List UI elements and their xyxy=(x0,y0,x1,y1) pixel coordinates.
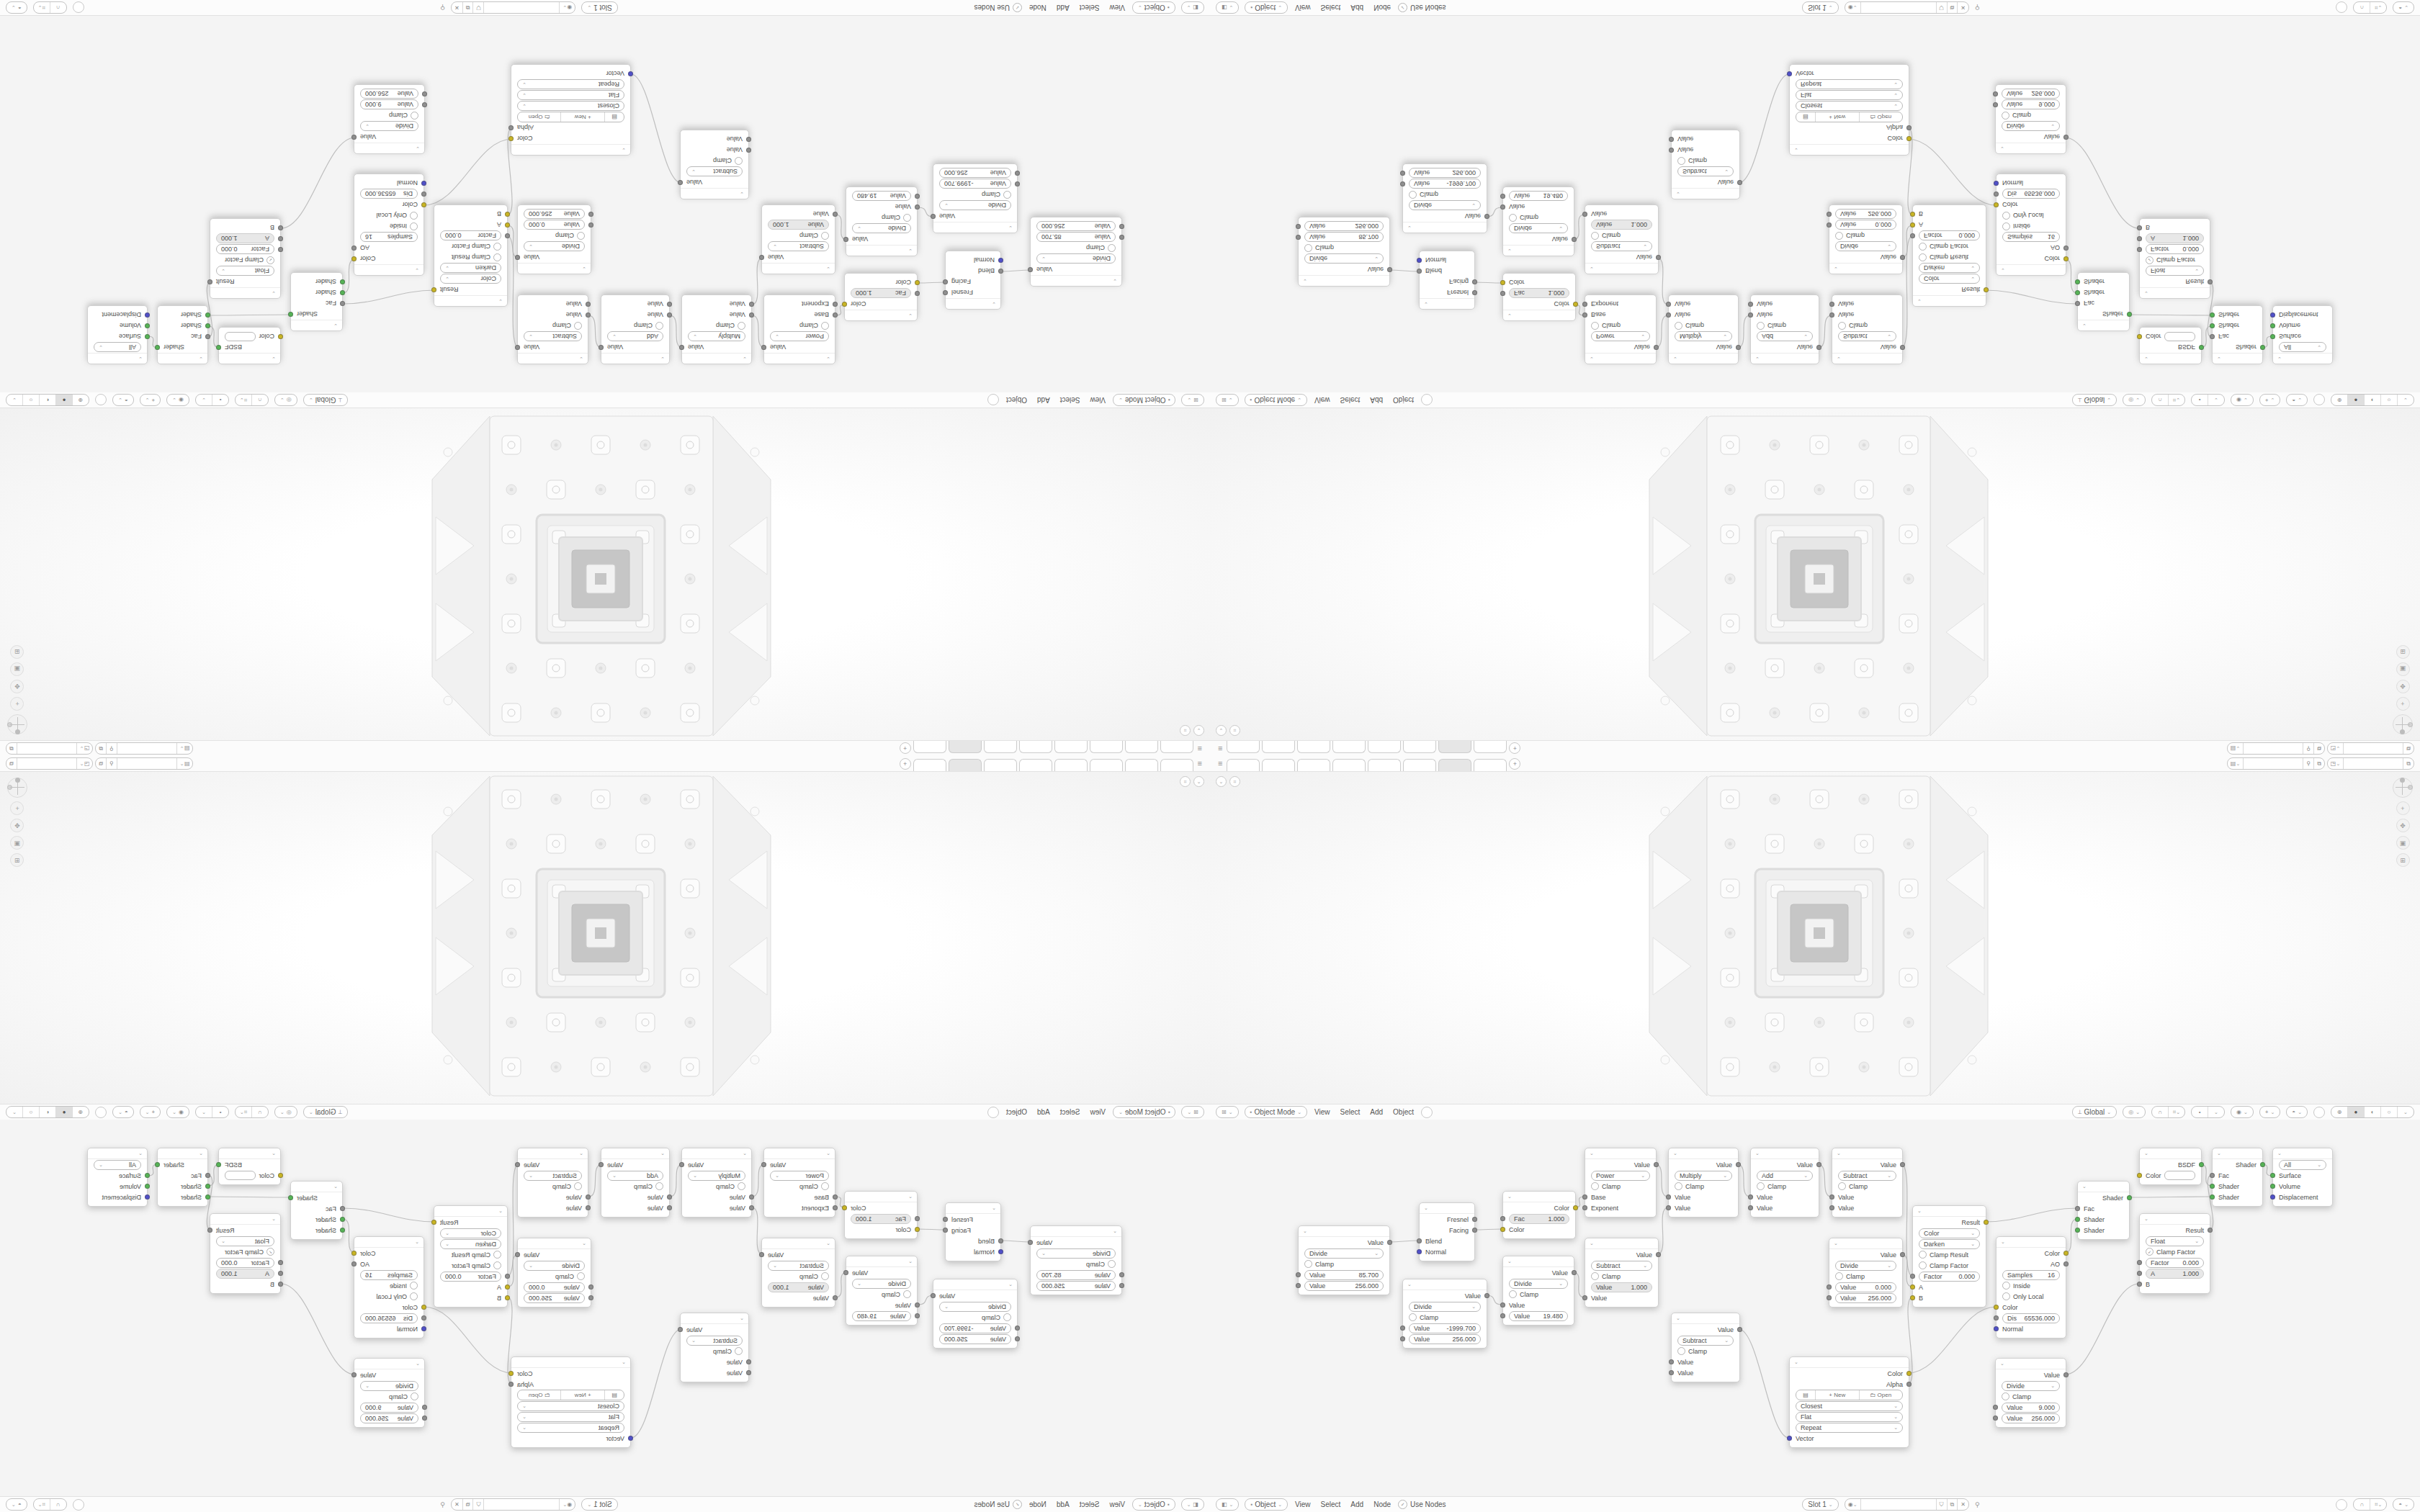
node-header[interactable]: ⌄ xyxy=(1996,1359,2066,1369)
node-math-divide-b[interactable]: ⌄ValueDivide⌄ClampValue-1999.700Value256… xyxy=(933,163,1018,233)
dropdown-color[interactable]: Color⌄ xyxy=(440,274,501,284)
socket-gray[interactable] xyxy=(515,1252,520,1257)
checkbox[interactable]: ✓ xyxy=(266,256,274,264)
shading-solid-icon[interactable]: ● xyxy=(56,395,73,405)
dropdown-divide[interactable]: Divide⌄ xyxy=(1409,1302,1481,1312)
node-math-subtract-a[interactable]: ⌄ValueSubtract⌄ClampValueValue xyxy=(1832,1148,1903,1218)
node-math-subtract-a[interactable]: ⌄ValueSubtract⌄ClampValueValue xyxy=(517,1148,588,1218)
material-name-field[interactable] xyxy=(484,1499,560,1510)
socket-green[interactable] xyxy=(2075,290,2080,295)
socket-gray[interactable] xyxy=(505,1274,510,1279)
checkbox[interactable] xyxy=(1838,322,1846,330)
socket-gray[interactable] xyxy=(588,1295,593,1300)
value-field-value[interactable]: Value19.480 xyxy=(852,192,911,202)
dropdown-divide[interactable]: Divide⌄ xyxy=(852,1279,911,1289)
node-layer-weight[interactable]: ⌄FresnelFacingBlendNormal xyxy=(1419,1202,1475,1261)
dropdown-subtract[interactable]: Subtract⌄ xyxy=(1838,332,1896,342)
socket-gray[interactable] xyxy=(2063,246,2069,251)
view-layer-selector[interactable]: ◳⌄ ⧉ xyxy=(6,742,93,755)
socket-green[interactable] xyxy=(205,1184,210,1189)
dropdown-flat[interactable]: Flat⌄ xyxy=(517,1412,624,1422)
socket-gray[interactable] xyxy=(1472,1228,1477,1233)
socket-green[interactable] xyxy=(2270,1173,2275,1178)
workspace-tab[interactable] xyxy=(1474,741,1507,753)
node-math-divide-c[interactable]: ⌄ValueDivide⌄ClampValueValue19.480 xyxy=(846,186,918,256)
menu-view[interactable]: View xyxy=(1089,396,1108,404)
socket-gray[interactable] xyxy=(2137,225,2142,230)
visibility-dropdown[interactable]: ◉⌄ xyxy=(166,394,189,406)
socket-blue[interactable] xyxy=(998,1249,1003,1254)
socket-gray[interactable] xyxy=(761,1162,766,1167)
options-icon[interactable]: ⌄ xyxy=(1216,725,1227,736)
workspace-tab[interactable] xyxy=(1438,759,1471,771)
camera-gizmo-icon[interactable]: ▣ xyxy=(11,662,24,676)
node-ambient-occlusion[interactable]: ⌄ColorAOSamples16InsideOnly LocalColorDi… xyxy=(1996,1236,2066,1338)
dropdown-darken[interactable]: Darken⌄ xyxy=(440,1239,501,1249)
socket-blue[interactable] xyxy=(628,71,633,76)
value-field-factor[interactable]: Factor0.000 xyxy=(216,245,274,255)
socket-gray[interactable] xyxy=(278,1282,283,1287)
editor-type-button[interactable]: ◧⌄ xyxy=(1216,1498,1239,1511)
workspace-tab[interactable] xyxy=(984,759,1017,771)
dropdown-flat[interactable]: Flat⌄ xyxy=(1796,91,1903,101)
socket-gray[interactable] xyxy=(746,148,751,153)
node-math-add[interactable]: ⌄ValueAdd⌄ClampValueValue xyxy=(601,294,670,364)
dropdown-divide[interactable]: Divide⌄ xyxy=(1409,201,1481,211)
dropdown-multiply[interactable]: Multiply⌄ xyxy=(1675,332,1732,342)
orientation-selector[interactable]: ⟂Global⌄ xyxy=(2072,394,2117,406)
node-math-divide-b[interactable]: ⌄ValueDivide⌄ClampValue-1999.700Value256… xyxy=(1402,1279,1487,1349)
node-header[interactable]: ⌄ xyxy=(1751,353,1819,364)
socket-blue[interactable] xyxy=(1787,1436,1792,1441)
value-field-value[interactable]: Value1.000 xyxy=(768,1282,829,1292)
node-header[interactable]: ⌄ xyxy=(1669,353,1738,364)
socket-yellow[interactable] xyxy=(505,1284,510,1290)
use-nodes-toggle[interactable]: ✓ Use Nodes xyxy=(974,1500,1021,1509)
copy-icon[interactable]: ⧉ xyxy=(96,758,107,769)
workspace-tab[interactable] xyxy=(1054,759,1088,771)
close-icon[interactable]: ✕ xyxy=(1957,2,1968,13)
dropdown-closest[interactable]: Closest⌄ xyxy=(517,102,624,112)
shading-dropdown-icon[interactable]: ⌄ xyxy=(6,1107,23,1117)
checkbox[interactable] xyxy=(1003,1313,1011,1321)
value-field-factor[interactable]: Factor0.000 xyxy=(2146,245,2204,255)
node-ambient-occlusion[interactable]: ⌄ColorAOSamples16InsideOnly LocalColorDi… xyxy=(354,174,424,276)
socket-gray[interactable] xyxy=(1829,312,1834,318)
node-header[interactable]: ⌄ xyxy=(1669,1148,1738,1159)
socket-gray[interactable] xyxy=(1827,222,1832,228)
node-math-divide-a[interactable]: ⌄ValueDivide⌄ClampValue85.700Value256.00… xyxy=(1298,217,1390,287)
new-image-button[interactable]: + New xyxy=(1815,1390,1859,1400)
node-diffuse-bsdf[interactable]: ⌄BSDFColor xyxy=(218,1148,281,1185)
dropdown-darken[interactable]: Darken⌄ xyxy=(1919,1239,1980,1249)
checkbox[interactable] xyxy=(655,1182,663,1190)
socket-gray[interactable] xyxy=(915,194,920,199)
shading-material-icon[interactable]: ◐ xyxy=(40,1107,56,1117)
socket-gray[interactable] xyxy=(1900,1162,1905,1167)
socket-green[interactable] xyxy=(2127,1195,2132,1200)
node-header[interactable]: ⌄ xyxy=(1585,1238,1658,1249)
checkbox[interactable] xyxy=(821,1182,829,1190)
material-selector[interactable]: ◉⌄ ⛉ ⧉ ✕ xyxy=(1845,1498,1969,1511)
socket-gray[interactable] xyxy=(1472,1217,1477,1222)
value-field-value[interactable]: Value-1999.700 xyxy=(939,179,1011,189)
mode-selector[interactable]: ▪Object Mode⌄ xyxy=(1245,394,1307,406)
node-header[interactable]: ⌄ xyxy=(1829,1238,1902,1249)
zoom-gizmo-icon[interactable]: + xyxy=(11,697,24,711)
hamburger-icon[interactable]: ≡ xyxy=(1196,744,1204,752)
value-field-value[interactable]: Value256.000 xyxy=(2002,1413,2060,1423)
node-material-output[interactable]: ⌄All⌄SurfaceVolumeDisplacement xyxy=(87,1148,148,1207)
socket-green[interactable] xyxy=(145,323,150,328)
dropdown-all[interactable]: All⌄ xyxy=(2279,1160,2326,1170)
socket-yellow[interactable] xyxy=(1573,1205,1578,1210)
checkbox[interactable] xyxy=(410,212,418,220)
node-header[interactable]: ⌄ xyxy=(1672,1313,1739,1324)
visibility-dropdown[interactable]: ◉⌄ xyxy=(166,1106,189,1118)
value-field-value[interactable]: Value9.000 xyxy=(360,1403,418,1413)
node-header[interactable]: ⌄ xyxy=(1503,310,1575,320)
socket-gray[interactable] xyxy=(749,302,754,307)
menu-select[interactable]: Select xyxy=(1059,1108,1082,1116)
socket-gray[interactable] xyxy=(1387,1240,1392,1245)
checkbox[interactable] xyxy=(1919,243,1927,251)
socket-gray[interactable] xyxy=(1015,181,1020,186)
workspace-tab[interactable] xyxy=(1332,759,1366,771)
socket-green[interactable] xyxy=(2199,1162,2204,1167)
editor-type-button[interactable]: ◧⌄ xyxy=(1181,1,1204,14)
socket-yellow[interactable] xyxy=(1984,287,1989,292)
node-math-subtract-b[interactable]: ⌄ValueSubtract⌄ClampValue1.000Value xyxy=(761,204,835,274)
socket-yellow[interactable] xyxy=(842,1205,847,1210)
proportional-editing[interactable]: • ⌄ xyxy=(195,1106,229,1118)
falloff-icon[interactable]: ⌄ xyxy=(2208,1107,2224,1117)
workspace-tab[interactable] xyxy=(1262,759,1295,771)
socket-gray[interactable] xyxy=(1827,1284,1832,1290)
menu-select[interactable]: Select xyxy=(1059,396,1082,404)
node-header[interactable]: ⌄ xyxy=(1996,143,2066,153)
material-name-field[interactable] xyxy=(1860,1499,1936,1510)
socket-gray[interactable] xyxy=(1484,1293,1489,1298)
socket-gray[interactable] xyxy=(1296,1272,1301,1277)
node-mix-shader-b[interactable]: ⌄ShaderFacShaderShader xyxy=(2212,1148,2263,1207)
node-math-divide-e[interactable]: ⌄ValueDivide⌄ClampValue9.000Value256.000 xyxy=(1995,84,2066,154)
node-header[interactable]: ⌄ xyxy=(1503,1192,1575,1202)
checkbox[interactable] xyxy=(410,222,418,230)
shading-mode-switch[interactable]: ⊕ ● ◐ ○ ⌄ xyxy=(2331,394,2414,406)
image-selector[interactable]: ▤+ New🗀 Open xyxy=(1796,112,1903,122)
socket-blue[interactable] xyxy=(1994,181,1999,186)
socket-gray[interactable] xyxy=(351,135,357,140)
shading-mode-switch[interactable]: ⊕ ● ◐ ○ ⌄ xyxy=(6,394,89,406)
move-gizmo-icon[interactable]: ✥ xyxy=(2396,680,2410,693)
socket-yellow[interactable] xyxy=(1994,202,1999,207)
value-field-fac[interactable]: Fac1.000 xyxy=(1509,1214,1569,1224)
menu-select[interactable]: Select xyxy=(1078,1500,1101,1508)
scene-selector[interactable]: ▤⌄ ⚲ ⧉ xyxy=(95,742,193,755)
node-math-divide-d[interactable]: ⌄ValueDivide⌄ClampValue0.000Value256.000 xyxy=(1829,1238,1903,1308)
shader-node-editor[interactable]: ⌄ValueDivide⌄ClampValue85.700Value256.00… xyxy=(0,1120,1210,1496)
menu-add[interactable]: Add xyxy=(1055,4,1071,12)
snap-toggle[interactable]: ◎⌄ xyxy=(2123,394,2146,406)
workspace-tab[interactable] xyxy=(913,741,946,753)
dropdown-add[interactable]: Add⌄ xyxy=(607,1171,663,1181)
socket-gray[interactable] xyxy=(1910,1274,1915,1279)
socket-blue[interactable] xyxy=(421,181,426,186)
socket-gray[interactable] xyxy=(833,1194,838,1200)
image-selector[interactable]: ▤+ New🗀 Open xyxy=(517,112,624,122)
socket-yellow[interactable] xyxy=(505,1295,510,1300)
socket-gray[interactable] xyxy=(1900,255,1905,260)
checkbox[interactable] xyxy=(410,1282,418,1290)
copy-icon[interactable]: ⧉ xyxy=(2313,758,2324,769)
socket-blue[interactable] xyxy=(998,258,1003,263)
pin-icon[interactable]: ⚲ xyxy=(2303,758,2313,769)
hamburger-icon[interactable]: ≡ xyxy=(1216,744,1224,752)
node-math-add[interactable]: ⌄ValueAdd⌄ClampValueValue xyxy=(1750,1148,1819,1218)
view-layer-name-field[interactable] xyxy=(2343,743,2403,754)
node-mix-color[interactable]: ⌄ResultColor⌄Darken⌄Clamp ResultClamp Fa… xyxy=(1912,1205,1986,1308)
socket-gray[interactable] xyxy=(1666,1194,1671,1200)
gizmo-dropdown[interactable]: ⌖⌄ xyxy=(2259,1106,2280,1118)
node-header[interactable]: ⌄ xyxy=(2273,1148,2332,1159)
node-header[interactable]: ⌄ xyxy=(2078,320,2129,330)
dropdown-subtract[interactable]: Subtract⌄ xyxy=(1677,167,1734,177)
node-header[interactable]: ⌄ xyxy=(354,143,424,153)
socket-gray[interactable] xyxy=(746,1359,751,1364)
node-header[interactable]: ⌄ xyxy=(1031,1226,1121,1237)
menu-object[interactable]: Object xyxy=(1391,396,1415,404)
checkbox[interactable] xyxy=(1591,1182,1599,1190)
overlays-dropdown[interactable]: ◓⌄ xyxy=(112,394,134,406)
value-field-value[interactable]: Value-1999.700 xyxy=(1409,179,1481,189)
snap-toggle[interactable]: ◎⌄ xyxy=(274,394,297,406)
dropdown-divide[interactable]: Divide⌄ xyxy=(524,242,585,252)
socket-green[interactable] xyxy=(2270,334,2275,339)
node-header[interactable]: ⌄ xyxy=(762,263,835,274)
socket-gray[interactable] xyxy=(508,1382,514,1387)
value-field-value[interactable]: Value256.000 xyxy=(939,1334,1011,1344)
socket-yellow[interactable] xyxy=(421,202,426,207)
node-header[interactable]: ⌄ xyxy=(846,1256,917,1267)
socket-green[interactable] xyxy=(288,1195,293,1200)
dropdown-float[interactable]: Float⌄ xyxy=(2146,1236,2204,1246)
shading-rendered-icon[interactable]: ○ xyxy=(23,395,40,405)
node-header[interactable]: ⌄ xyxy=(354,1237,423,1248)
socket-gray[interactable] xyxy=(931,1293,936,1298)
socket-gray[interactable] xyxy=(1994,192,1999,197)
value-field-value[interactable]: Value256.000 xyxy=(1304,1281,1384,1291)
checkbox[interactable] xyxy=(410,1292,418,1300)
node-header[interactable]: ⌄ xyxy=(946,298,1000,309)
dropdown-divide[interactable]: Divide⌄ xyxy=(524,1261,585,1271)
socket-gray[interactable] xyxy=(679,345,684,350)
node-header[interactable]: ⌄ xyxy=(1031,275,1121,286)
viewport-3d[interactable]: ⌄ ⌗ + ✥ ▣ ⊞ xyxy=(0,772,1210,1104)
magnet-icon[interactable]: ∩ xyxy=(2354,1499,2370,1510)
axis-gizmo[interactable] xyxy=(7,778,27,798)
value-field-fac[interactable]: Fac1.000 xyxy=(851,289,911,299)
grid-icon[interactable]: ⌗ xyxy=(1180,725,1191,736)
dropdown-color[interactable]: Color⌄ xyxy=(1919,1228,1980,1238)
shading-wireframe-icon[interactable]: ⊕ xyxy=(2331,1107,2347,1117)
checkbox[interactable] xyxy=(1304,244,1312,252)
checkbox[interactable] xyxy=(1677,1347,1685,1355)
socket-green[interactable] xyxy=(340,290,345,295)
socket-blue[interactable] xyxy=(2270,1194,2275,1200)
socket-green[interactable] xyxy=(340,1217,345,1222)
checkbox[interactable] xyxy=(1835,1272,1843,1280)
workspace-tab[interactable] xyxy=(1019,741,1052,753)
ortho-gizmo-icon[interactable]: ⊞ xyxy=(11,853,24,867)
value-field-value[interactable]: Value0.000 xyxy=(524,1282,585,1292)
checkbox[interactable]: ✓ xyxy=(2146,256,2154,264)
value-field-a[interactable]: A1.000 xyxy=(2146,1269,2204,1279)
checkbox[interactable] xyxy=(1835,232,1843,240)
socket-yellow[interactable] xyxy=(1984,1220,1989,1225)
magnet-icon[interactable]: ∩ xyxy=(50,2,66,13)
socket-gray[interactable] xyxy=(1582,1295,1587,1300)
socket-gray[interactable] xyxy=(1816,1162,1821,1167)
node-mix-shader-b[interactable]: ⌄ShaderFacShaderShader xyxy=(157,305,208,364)
socket-gray[interactable] xyxy=(1015,1326,1020,1331)
node-mix-shader-b[interactable]: ⌄ShaderFacShaderShader xyxy=(157,1148,208,1207)
snap-settings[interactable]: ∩ ⌗⌄ xyxy=(33,1498,67,1511)
shader-node-editor[interactable]: ⌄ValueDivide⌄ClampValue85.700Value256.00… xyxy=(1210,1120,2420,1496)
zoom-gizmo-icon[interactable]: + xyxy=(2396,697,2410,711)
open-image-button[interactable]: 🗀 Open xyxy=(518,112,562,122)
node-header[interactable]: ⌄ xyxy=(1829,263,1902,274)
transform-pivot-button[interactable] xyxy=(987,1107,999,1118)
socket-gray[interactable] xyxy=(759,255,764,260)
socket-yellow[interactable] xyxy=(278,1173,283,1178)
dropdown-all[interactable]: All⌄ xyxy=(94,1160,141,1170)
menu-select[interactable]: Select xyxy=(1339,396,1362,404)
socket-gray[interactable] xyxy=(586,302,591,307)
snap-target-icon[interactable]: ⌗⌄ xyxy=(236,395,252,405)
menu-view[interactable]: View xyxy=(1108,1500,1126,1508)
editor-type-button[interactable]: ⊞⌄ xyxy=(1216,1106,1239,1118)
socket-gray[interactable] xyxy=(508,125,514,130)
editor-type-button[interactable]: ⊞⌄ xyxy=(1216,394,1239,406)
workspace-tab[interactable] xyxy=(949,741,982,753)
value-field-value[interactable]: Value19.480 xyxy=(852,1311,911,1321)
socket-gray[interactable] xyxy=(278,1260,283,1265)
ortho-gizmo-icon[interactable]: ⊞ xyxy=(11,645,24,659)
visibility-dropdown[interactable]: ◉⌄ xyxy=(2231,1106,2254,1118)
snap-settings[interactable]: ∩ ⌗⌄ xyxy=(235,394,269,406)
checkbox[interactable] xyxy=(655,322,663,330)
snap-settings[interactable]: ∩ ⌗⌄ xyxy=(235,1106,269,1118)
mode-selector[interactable]: ▪Object Mode⌄ xyxy=(1113,1106,1175,1118)
socket-gray[interactable] xyxy=(1572,237,1577,242)
material-selector[interactable]: ◉⌄ ⛉ ⧉ ✕ xyxy=(451,1,575,14)
node-header[interactable]: ⌄ xyxy=(434,1206,507,1217)
open-image-button[interactable]: 🗀 Open xyxy=(518,1390,562,1400)
proportional-icon[interactable]: • xyxy=(212,395,228,405)
viewport-3d[interactable]: ⌄ ⌗ + ✥ ▣ ⊞ xyxy=(0,408,1210,740)
pin-icon[interactable]: ⚲ xyxy=(107,758,117,769)
socket-yellow[interactable] xyxy=(505,222,510,228)
node-header[interactable]: ⌄ xyxy=(2273,353,2332,364)
socket-gray[interactable] xyxy=(2075,301,2080,306)
workspace-tab[interactable] xyxy=(1403,759,1436,771)
workspace-tab[interactable] xyxy=(1160,741,1193,753)
snap-toggle[interactable] xyxy=(73,1499,84,1511)
checkbox[interactable] xyxy=(1108,1260,1116,1268)
dropdown-multiply[interactable]: Multiply⌄ xyxy=(688,332,745,342)
add-workspace-button[interactable]: + xyxy=(900,743,911,755)
node-image-texture[interactable]: ⌄ColorAlpha▤+ New🗀 OpenClosest⌄Flat⌄Repe… xyxy=(511,1356,631,1448)
socket-gray[interactable] xyxy=(599,345,604,350)
value-field-value[interactable]: Value256.000 xyxy=(360,1413,418,1423)
node-header[interactable]: ⌄ xyxy=(518,1238,591,1249)
node-header[interactable]: ⌄ xyxy=(354,1359,424,1369)
node-mix-float[interactable]: ⌄ResultFloat⌄✓Clamp FactorFactor0.000A1.… xyxy=(2139,1213,2210,1294)
socket-gray[interactable] xyxy=(746,1370,751,1375)
dropdown-divide[interactable]: Divide⌄ xyxy=(1036,1248,1116,1259)
image-selector[interactable]: ▤+ New🗀 Open xyxy=(517,1390,624,1400)
node-header[interactable]: ⌄ xyxy=(845,1192,917,1202)
value-field-fac[interactable]: Fac1.000 xyxy=(1509,289,1569,299)
shield-icon[interactable]: ⛉ xyxy=(473,1499,484,1510)
node-math-divide-e[interactable]: ⌄ValueDivide⌄ClampValue9.000Value256.000 xyxy=(1995,1358,2066,1428)
node-header[interactable]: ⌄ xyxy=(2213,353,2262,364)
socket-gray[interactable] xyxy=(1994,1315,1999,1320)
socket-gray[interactable] xyxy=(915,204,920,210)
socket-gray[interactable] xyxy=(833,212,838,217)
socket-gray[interactable] xyxy=(1666,302,1671,307)
checkbox[interactable]: ✓ xyxy=(266,1248,274,1256)
options-icon[interactable]: ⌄ xyxy=(1193,725,1204,736)
falloff-icon[interactable]: ⌄ xyxy=(196,1107,212,1117)
workspace-tab[interactable] xyxy=(1438,741,1471,753)
pin-icon[interactable]: ⚲ xyxy=(2303,743,2313,754)
socket-gray[interactable] xyxy=(679,1162,684,1167)
socket-gray[interactable] xyxy=(1417,269,1422,274)
node-mix-shader-a[interactable]: ⌄ShaderFacShaderShader xyxy=(290,272,343,331)
shading-rendered-icon[interactable]: ○ xyxy=(2380,395,2397,405)
node-header[interactable]: ⌄ xyxy=(2140,353,2201,364)
add-workspace-button[interactable]: + xyxy=(900,758,911,770)
snap-toggle[interactable] xyxy=(73,2,84,14)
workspace-tab[interactable] xyxy=(949,759,982,771)
node-header[interactable]: ⌄ xyxy=(1503,1256,1574,1267)
checkbox[interactable] xyxy=(821,1272,829,1280)
socket-green[interactable] xyxy=(2210,312,2215,318)
socket-gray[interactable] xyxy=(1993,102,1998,107)
value-field-value[interactable]: Value256.000 xyxy=(2002,89,2060,99)
socket-green[interactable] xyxy=(216,1162,221,1167)
copy-icon[interactable]: ⧉ xyxy=(1947,1499,1958,1510)
node-math-subtract-b[interactable]: ⌄ValueSubtract⌄ClampValue1.000Value xyxy=(1585,204,1659,274)
xray-toggle[interactable] xyxy=(95,395,107,406)
image-icon[interactable]: ▤ xyxy=(605,112,624,122)
socket-gray[interactable] xyxy=(1400,171,1405,176)
snap-toggle[interactable] xyxy=(2336,1499,2347,1511)
socket-gray[interactable] xyxy=(2137,1282,2142,1287)
dropdown-divide[interactable]: Divide⌄ xyxy=(1304,1248,1384,1259)
socket-gray[interactable] xyxy=(1910,233,1915,238)
dropdown-add[interactable]: Add⌄ xyxy=(1757,1171,1813,1181)
dropdown-divide[interactable]: Divide⌄ xyxy=(2002,1381,2060,1391)
menu-add[interactable]: Add xyxy=(1368,396,1384,404)
color-swatch-field[interactable] xyxy=(2164,332,2195,341)
value-field-value[interactable]: Value9.000 xyxy=(2002,100,2060,110)
color-swatch-field[interactable] xyxy=(2164,1171,2195,1180)
socket-gray[interactable] xyxy=(207,1228,212,1233)
value-field-samples[interactable]: Samples16 xyxy=(2002,233,2060,243)
